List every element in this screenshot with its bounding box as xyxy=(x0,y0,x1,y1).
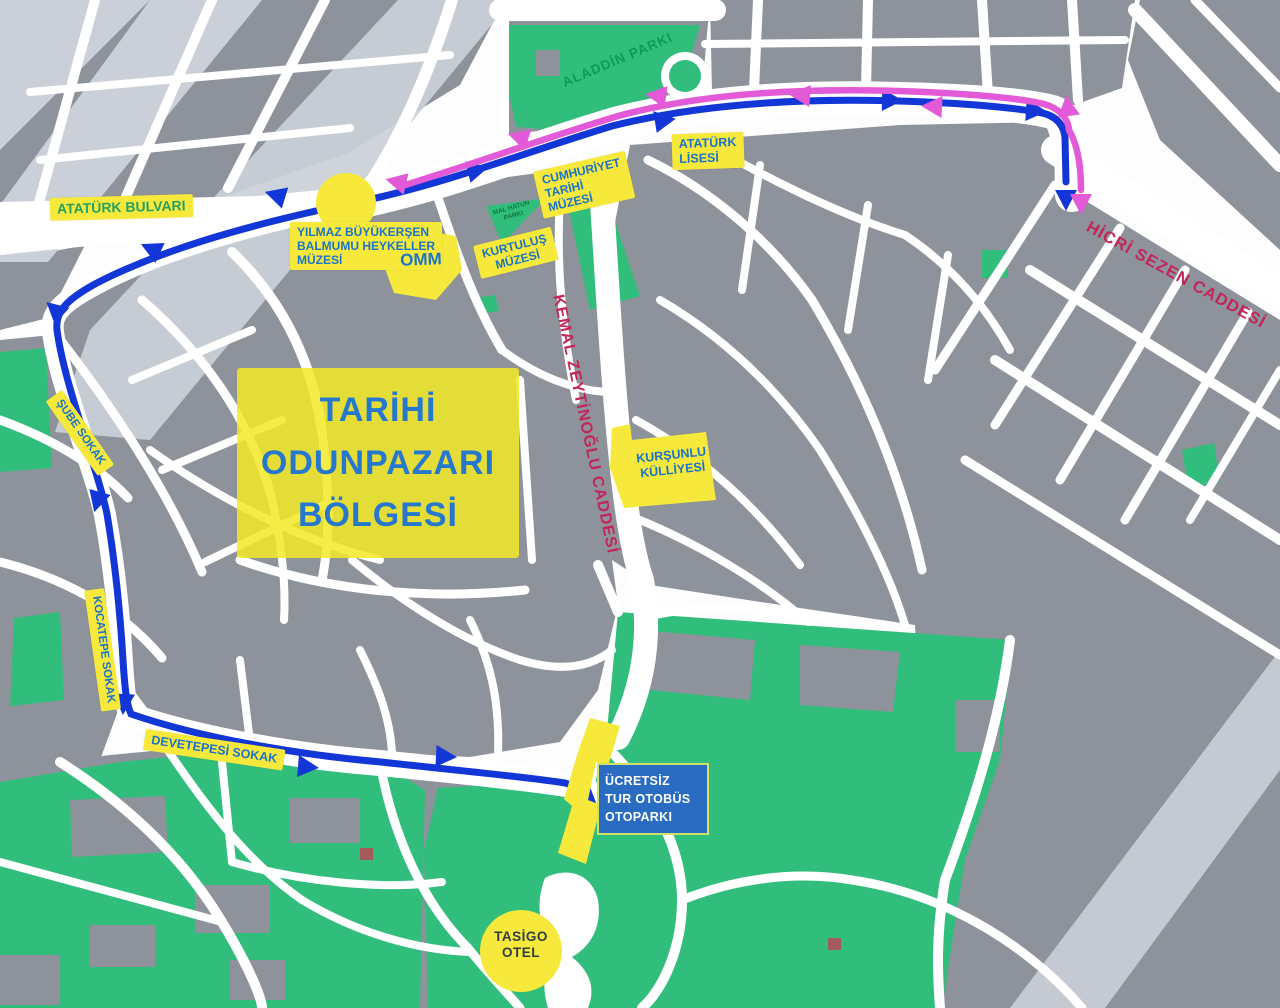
region-label-odunpazari: TARİHİ ODUNPAZARI BÖLGESİ xyxy=(237,368,519,558)
street-label-ataturk-bulvari: ATATÜRK BULVARI xyxy=(50,194,193,220)
poi-label-omm: OMM xyxy=(396,249,447,271)
poi-label-ataturk-lisesi: ATATÜRK LİSESİ xyxy=(671,132,744,170)
poi-label-bus-parking: ÜCRETSİZ TUR OTOBÜS OTOPARKI xyxy=(597,763,709,835)
roundabout xyxy=(661,52,709,100)
city-map: ALADDİN PARKI ATATÜRK BULVARI YILMAZ BÜY… xyxy=(0,0,1280,1008)
poi-label-tasigo: TASİGO OTEL xyxy=(481,929,561,961)
map-canvas xyxy=(0,0,1280,1008)
